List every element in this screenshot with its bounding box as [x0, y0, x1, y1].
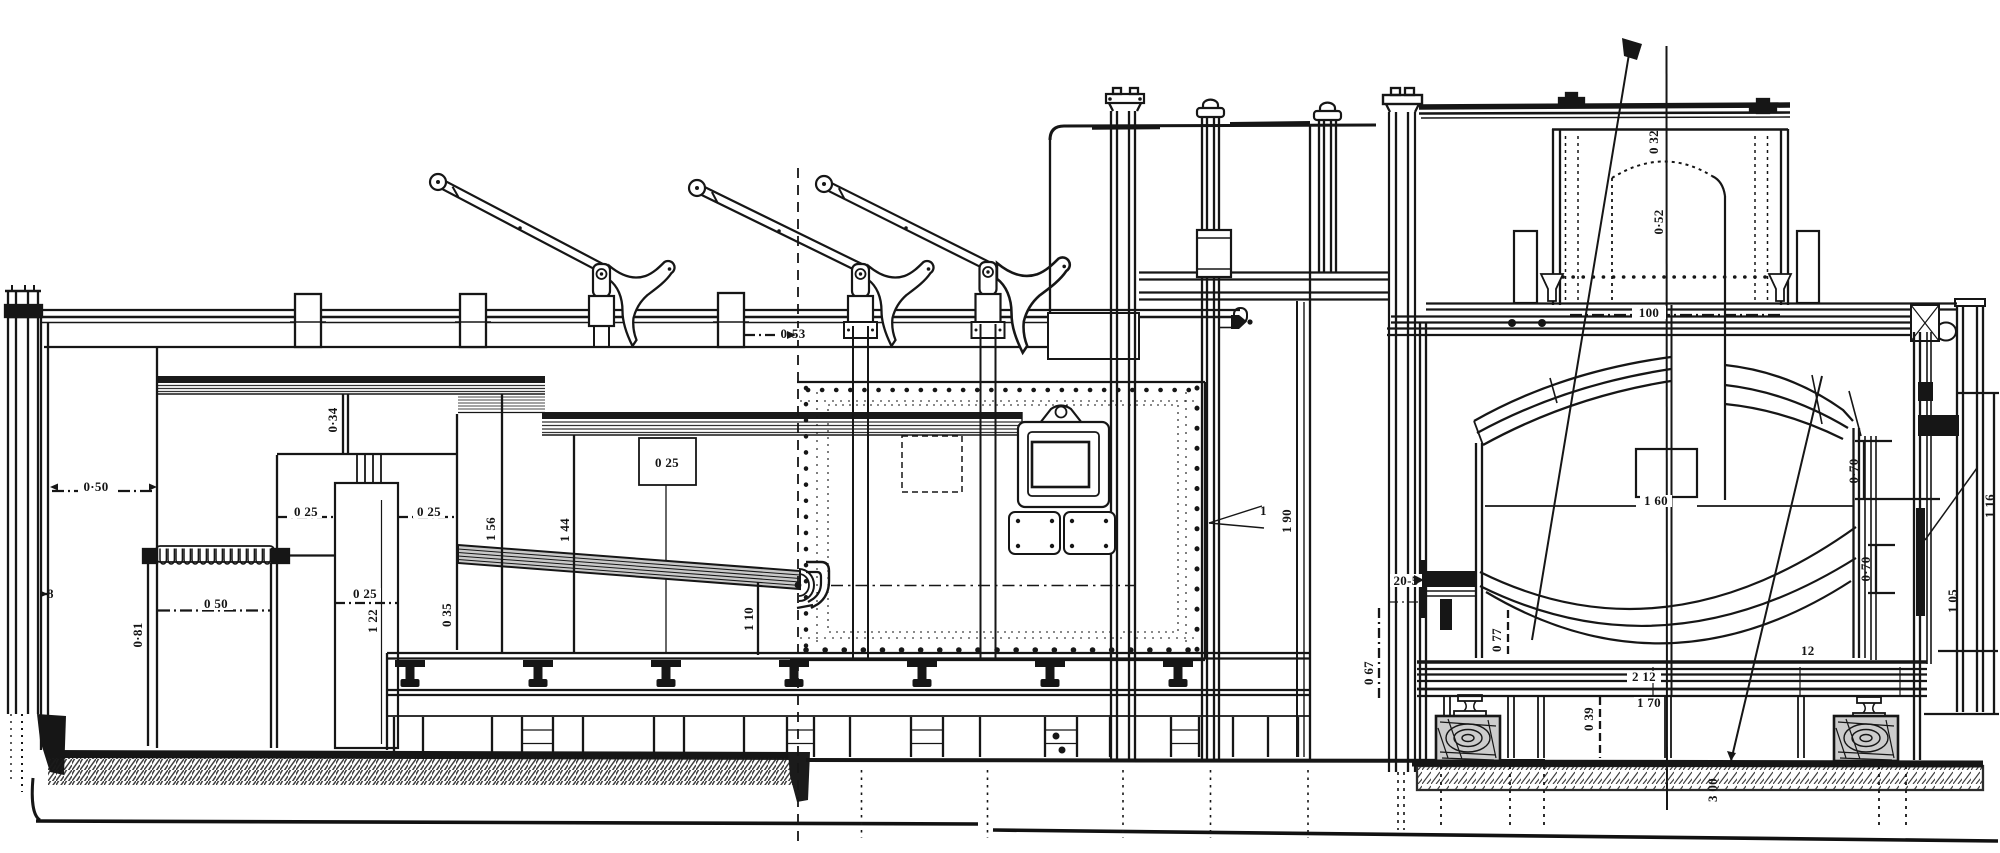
svg-text:0 39: 0 39 — [1581, 707, 1596, 731]
svg-text:1 10: 1 10 — [741, 607, 756, 631]
svg-text:0 77: 0 77 — [1489, 628, 1504, 652]
svg-text:1 22: 1 22 — [365, 609, 380, 633]
svg-text:1 56: 1 56 — [483, 517, 498, 541]
svg-text:0 32: 0 32 — [1646, 130, 1661, 154]
svg-text:100: 100 — [1639, 305, 1659, 320]
svg-text:0 35: 0 35 — [439, 603, 454, 627]
svg-text:0·52: 0·52 — [1651, 209, 1666, 234]
svg-text:0·81: 0·81 — [130, 622, 145, 647]
svg-text:0 50: 0 50 — [204, 596, 228, 611]
svg-text:1 90: 1 90 — [1279, 509, 1294, 533]
svg-text:8: 8 — [47, 586, 54, 601]
svg-text:0 25: 0 25 — [417, 504, 441, 519]
svg-text:0·53: 0·53 — [780, 326, 805, 341]
svg-text:1 70: 1 70 — [1637, 695, 1661, 710]
svg-text:12: 12 — [1801, 643, 1815, 658]
svg-text:0·70: 0·70 — [1858, 556, 1873, 581]
svg-text:1 44: 1 44 — [557, 518, 572, 542]
svg-text:0 25: 0 25 — [294, 504, 318, 519]
svg-text:0·70: 0·70 — [1846, 458, 1861, 483]
svg-text:0·50: 0·50 — [83, 479, 108, 494]
svg-text:2 12: 2 12 — [1632, 669, 1656, 684]
svg-text:0 25: 0 25 — [353, 586, 377, 601]
svg-text:1: 1 — [1260, 503, 1267, 518]
svg-text:0 67: 0 67 — [1361, 661, 1376, 685]
svg-text:1 05: 1 05 — [1945, 589, 1960, 613]
svg-text:1 16: 1 16 — [1982, 494, 1997, 518]
svg-text:0 25: 0 25 — [655, 455, 679, 470]
svg-text:0·34: 0·34 — [325, 407, 340, 432]
svg-text:3 00: 3 00 — [1705, 778, 1720, 802]
svg-text:1 60: 1 60 — [1644, 493, 1668, 508]
